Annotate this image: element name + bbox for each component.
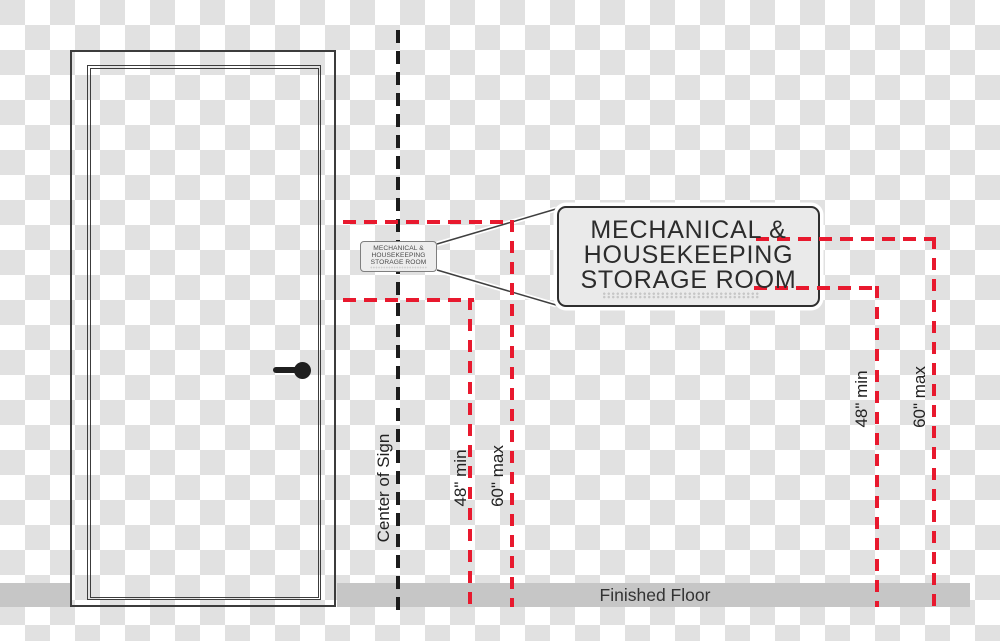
measure-60max-left-horizontal [343,220,514,224]
diagram-canvas: Finished Floor MECHANICAL & HOUSEKEEPING… [0,0,1000,641]
sign-line: STORAGE ROOM [557,268,820,293]
measure-60max-right-vertical [932,237,936,607]
center-of-sign-line [396,30,400,612]
min-48-label-left: 48" min [451,408,471,548]
measure-48min-right-vertical [875,286,879,607]
sign-line: MECHANICAL & [361,245,436,252]
finished-floor-label: Finished Floor [555,585,755,605]
max-60-label-right: 60" max [910,327,930,467]
center-of-sign-label: Center of Sign [374,418,394,558]
wall-sign-detail-text: MECHANICAL & HOUSEKEEPING STORAGE ROOM [557,206,820,293]
wall-sign-small: MECHANICAL & HOUSEKEEPING STORAGE ROOM [360,241,437,272]
sign-line: HOUSEKEEPING [557,243,820,268]
max-60-label-left: 60" max [488,406,508,546]
braille-row-small [370,266,427,269]
measure-48min-left-horizontal [343,298,474,302]
sign-line: HOUSEKEEPING [361,252,436,259]
measure-60max-left-vertical [510,220,514,607]
min-48-label-right: 48" min [852,329,872,469]
sign-line: MECHANICAL & [557,218,820,243]
